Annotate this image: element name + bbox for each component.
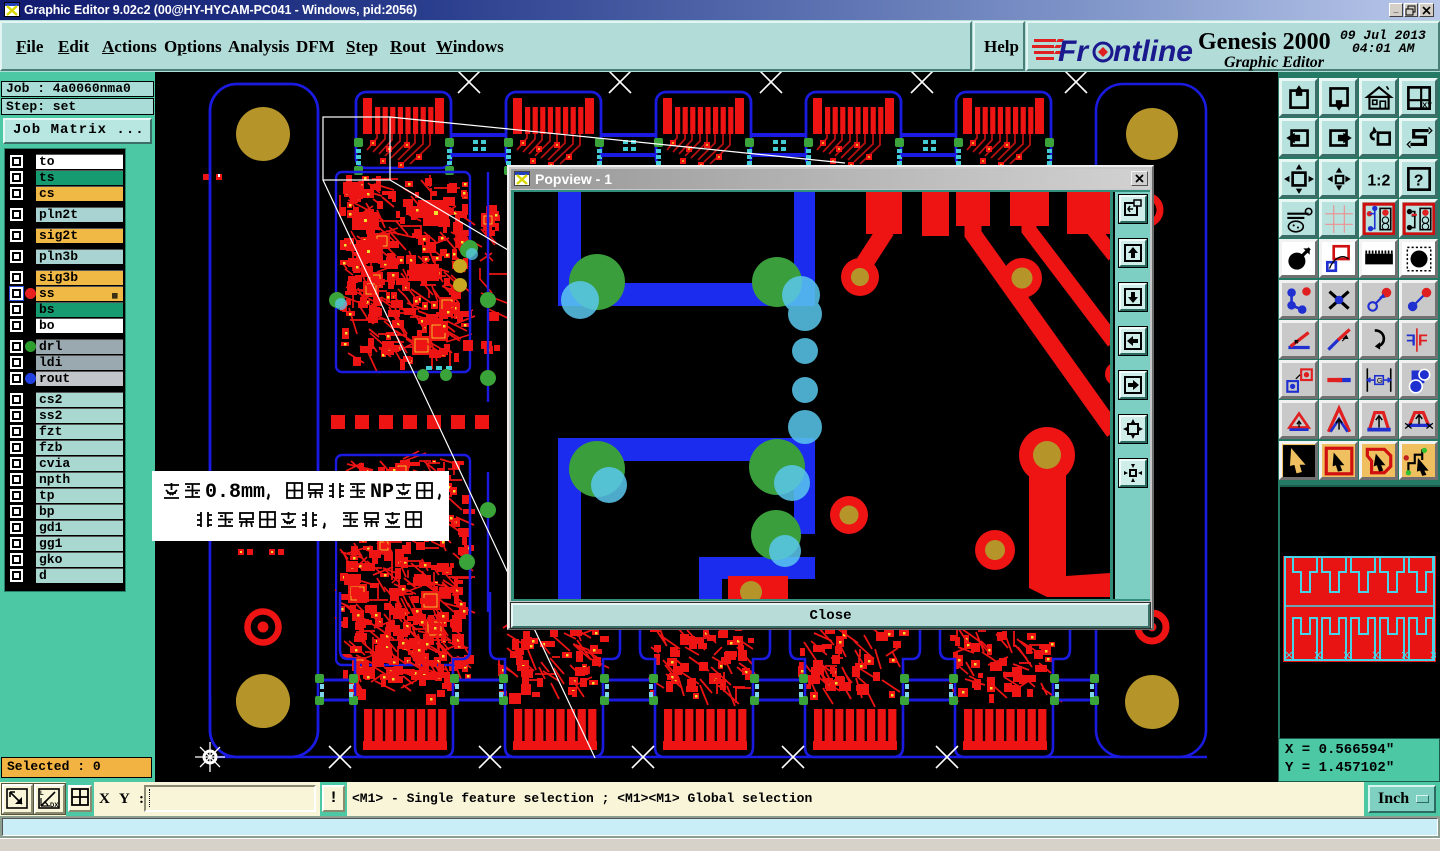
svg-text:G: G bbox=[1377, 376, 1383, 385]
svg-text:Fr: Fr bbox=[1058, 35, 1090, 67]
svg-text:0.8mm: 0.8mm bbox=[205, 481, 265, 504]
svg-text:F: F bbox=[1418, 332, 1428, 349]
svg-text:L: L bbox=[40, 791, 44, 797]
svg-text:ntline: ntline bbox=[1113, 35, 1193, 67]
svg-text:NP: NP bbox=[370, 481, 394, 504]
svg-text:XY: XY bbox=[1422, 101, 1432, 110]
svg-text:DX: DX bbox=[50, 803, 58, 809]
svg-text:F: F bbox=[1406, 332, 1416, 349]
svg-text:1:2: 1:2 bbox=[1367, 172, 1390, 189]
svg-text:?: ? bbox=[1414, 172, 1424, 189]
